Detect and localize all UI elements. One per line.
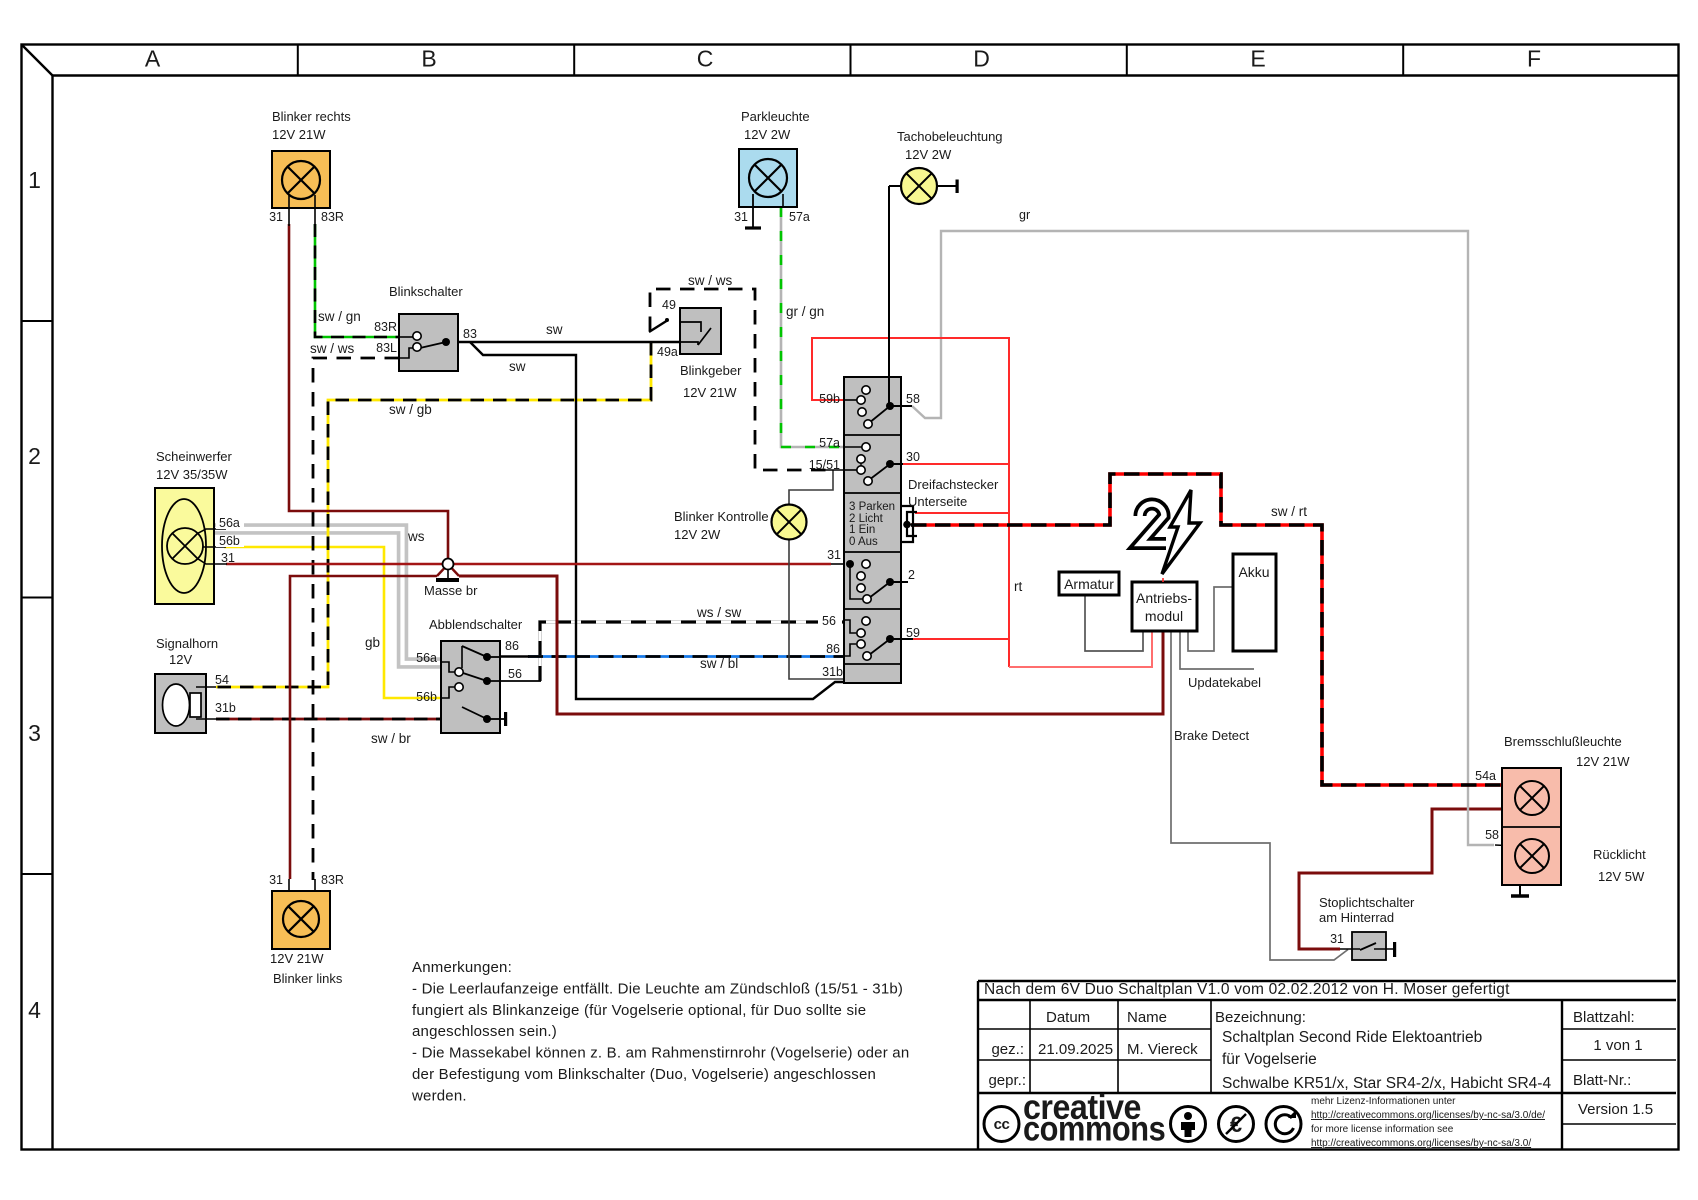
svg-text:Blinkgeber: Blinkgeber <box>680 363 742 378</box>
svg-text:49a: 49a <box>657 345 678 359</box>
svg-text:sw / gb: sw / gb <box>389 402 432 417</box>
svg-text:Version 1.5: Version 1.5 <box>1578 1101 1653 1118</box>
svg-text:30: 30 <box>906 450 920 464</box>
svg-text:3: 3 <box>28 720 41 746</box>
svg-text:Blinkschalter: Blinkschalter <box>389 284 463 299</box>
svg-text:Blattzahl:: Blattzahl: <box>1573 1009 1635 1026</box>
svg-text:werden.: werden. <box>411 1087 467 1104</box>
svg-text:für Vogelserie: für Vogelserie <box>1222 1051 1317 1068</box>
svg-text:Stoplichtschalter: Stoplichtschalter <box>1319 895 1415 910</box>
svg-text:http://creativecommons.org/lic: http://creativecommons.org/licenses/by-n… <box>1311 1110 1545 1121</box>
svg-text:21.09.2025: 21.09.2025 <box>1038 1041 1113 1058</box>
svg-text:Armatur: Armatur <box>1064 576 1114 592</box>
svg-text:commons: commons <box>1023 1109 1165 1148</box>
svg-text:12V 5W: 12V 5W <box>1598 869 1645 884</box>
svg-text:fungiert als Blinkanzeige (für: fungiert als Blinkanzeige (für Vogelseri… <box>412 1002 866 1019</box>
svg-text:1 von 1: 1 von 1 <box>1593 1037 1642 1054</box>
svg-text:83R: 83R <box>321 210 344 224</box>
svg-text:Schwalbe KR51/x, Star SR4-2/x,: Schwalbe KR51/x, Star SR4-2/x, Habicht S… <box>1222 1075 1551 1092</box>
svg-text:59b: 59b <box>819 392 840 406</box>
svg-text:Scheinwerfer: Scheinwerfer <box>156 449 233 464</box>
svg-text:31: 31 <box>269 210 283 224</box>
svg-text:1: 1 <box>28 167 41 193</box>
svg-text:31: 31 <box>734 210 748 224</box>
svg-text:1 Ein: 1 Ein <box>849 524 875 536</box>
svg-text:Schaltplan Second Ride Elektoa: Schaltplan Second Ride Elektoantrieb <box>1222 1029 1482 1046</box>
svg-text:83: 83 <box>463 327 477 341</box>
svg-text:E: E <box>1250 46 1265 72</box>
svg-text:Unterseite: Unterseite <box>908 494 967 509</box>
svg-text:Bremsschlußleuchte: Bremsschlußleuchte <box>1504 734 1622 749</box>
svg-text:sw / ws: sw / ws <box>688 273 733 288</box>
svg-text:sw / gn: sw / gn <box>318 309 361 324</box>
svg-text:Brake Detect: Brake Detect <box>1174 728 1250 743</box>
svg-text:56b: 56b <box>219 534 240 548</box>
svg-text:12V 2W: 12V 2W <box>744 127 791 142</box>
svg-text:Dreifachstecker: Dreifachstecker <box>908 477 999 492</box>
svg-text:2: 2 <box>908 568 915 582</box>
svg-text:12V 2W: 12V 2W <box>905 147 952 162</box>
svg-text:Parkleuchte: Parkleuchte <box>741 109 810 124</box>
svg-text:Antriebs-: Antriebs- <box>1136 590 1192 606</box>
svg-text:Blinker rechts: Blinker rechts <box>272 109 351 124</box>
svg-text:gepr.:: gepr.: <box>988 1072 1026 1089</box>
svg-text:Signalhorn: Signalhorn <box>156 636 218 651</box>
svg-text:C: C <box>697 46 714 72</box>
svg-text:Rücklicht: Rücklicht <box>1593 847 1646 862</box>
svg-text:12V: 12V <box>169 652 192 667</box>
svg-text:Name: Name <box>1127 1009 1167 1026</box>
svg-text:56a: 56a <box>219 516 240 530</box>
svg-text:54: 54 <box>215 673 229 687</box>
svg-text:F: F <box>1527 46 1541 72</box>
svg-text:Masse br: Masse br <box>424 583 478 598</box>
svg-text:86: 86 <box>505 639 519 653</box>
svg-text:mehr Lizenz-Informationen unte: mehr Lizenz-Informationen unter <box>1311 1096 1456 1107</box>
svg-text:57a: 57a <box>789 210 810 224</box>
svg-text:sw / rt: sw / rt <box>1271 504 1307 519</box>
svg-text:ws / sw: ws / sw <box>696 605 742 620</box>
svg-text:31: 31 <box>827 548 841 562</box>
svg-text:12V 21W: 12V 21W <box>270 951 324 966</box>
svg-text:83R: 83R <box>374 320 397 334</box>
svg-text:Datum: Datum <box>1046 1009 1090 1026</box>
svg-text:12V 21W: 12V 21W <box>683 385 737 400</box>
svg-text:31b: 31b <box>215 701 236 715</box>
svg-text:modul: modul <box>1145 608 1183 624</box>
svg-text:Akku: Akku <box>1238 564 1269 580</box>
svg-text:http://creativecommons.org/lic: http://creativecommons.org/licenses/by-n… <box>1311 1138 1531 1149</box>
svg-text:cc: cc <box>994 1116 1010 1133</box>
svg-text:Abblendschalter: Abblendschalter <box>429 617 523 632</box>
svg-text:Anmerkungen:: Anmerkungen: <box>412 959 512 976</box>
svg-text:A: A <box>145 46 161 72</box>
svg-text:ws: ws <box>407 529 425 544</box>
svg-text:31: 31 <box>269 873 283 887</box>
svg-text:gr / gn: gr / gn <box>786 304 824 319</box>
svg-text:Bezeichnung:: Bezeichnung: <box>1215 1009 1306 1026</box>
svg-text:54a: 54a <box>1475 769 1496 783</box>
svg-text:der Befestigung vom Blinkschal: der Befestigung vom Blinkschalter (Duo, … <box>412 1066 876 1083</box>
svg-text:sw: sw <box>546 322 563 337</box>
svg-text:56b: 56b <box>416 690 437 704</box>
svg-text:am Hinterrad: am Hinterrad <box>1319 910 1394 925</box>
svg-text:56: 56 <box>822 614 836 628</box>
svg-text:B: B <box>421 46 436 72</box>
svg-text:83L: 83L <box>376 341 397 355</box>
svg-text:31: 31 <box>1330 932 1344 946</box>
svg-text:56a: 56a <box>416 651 437 665</box>
svg-text:12V 2W: 12V 2W <box>674 527 721 542</box>
svg-text:sw / bl: sw / bl <box>700 656 738 671</box>
svg-text:Nach dem 6V Duo Schaltplan V1.: Nach dem 6V Duo Schaltplan V1.0 vom 02.0… <box>984 981 1510 998</box>
svg-text:gb: gb <box>365 635 380 650</box>
svg-text:angeschlossen sein.): angeschlossen sein.) <box>412 1023 557 1040</box>
svg-text:gr: gr <box>1019 208 1030 222</box>
svg-text:0 Aus: 0 Aus <box>849 536 878 548</box>
svg-text:Tachobeleuchtung: Tachobeleuchtung <box>897 129 1003 144</box>
svg-text:49: 49 <box>662 298 676 312</box>
svg-text:sw / ws: sw / ws <box>310 341 355 356</box>
svg-text:12V 21W: 12V 21W <box>1576 754 1630 769</box>
svg-text:gez.:: gez.: <box>991 1041 1024 1058</box>
svg-text:86: 86 <box>826 642 840 656</box>
svg-text:59: 59 <box>906 626 920 640</box>
svg-text:D: D <box>973 46 990 72</box>
svg-text:57a: 57a <box>819 436 840 450</box>
svg-text:Blinker links: Blinker links <box>273 971 343 986</box>
svg-text:M. Viereck: M. Viereck <box>1127 1041 1198 1058</box>
svg-text:sw: sw <box>509 359 526 374</box>
svg-text:2: 2 <box>28 443 41 469</box>
svg-text:15/51: 15/51 <box>809 458 840 472</box>
svg-text:for more license information s: for more license information see <box>1311 1124 1454 1135</box>
svg-text:12V 35/35W: 12V 35/35W <box>156 467 228 482</box>
svg-text:56: 56 <box>508 667 522 681</box>
svg-text:58: 58 <box>1485 828 1499 842</box>
svg-text:sw / br: sw / br <box>371 731 411 746</box>
svg-text:83R: 83R <box>321 873 344 887</box>
svg-text:- Die Massekabel können z. B.: - Die Massekabel können z. B. am Rahmens… <box>412 1045 909 1062</box>
svg-text:31: 31 <box>221 551 235 565</box>
svg-text:4: 4 <box>28 997 41 1023</box>
svg-text:3 Parken: 3 Parken <box>849 501 895 513</box>
svg-text:- Die Leerlaufanzeige entfällt: - Die Leerlaufanzeige entfällt. Die Leuc… <box>412 980 903 997</box>
svg-text:58: 58 <box>906 392 920 406</box>
svg-text:Updatekabel: Updatekabel <box>1188 675 1261 690</box>
svg-text:12V 21W: 12V 21W <box>272 127 326 142</box>
svg-text:rt: rt <box>1014 579 1022 594</box>
svg-text:Blatt-Nr.:: Blatt-Nr.: <box>1573 1072 1631 1089</box>
svg-text:Blinker Kontrolle: Blinker Kontrolle <box>674 509 769 524</box>
svg-text:31b: 31b <box>822 665 843 679</box>
